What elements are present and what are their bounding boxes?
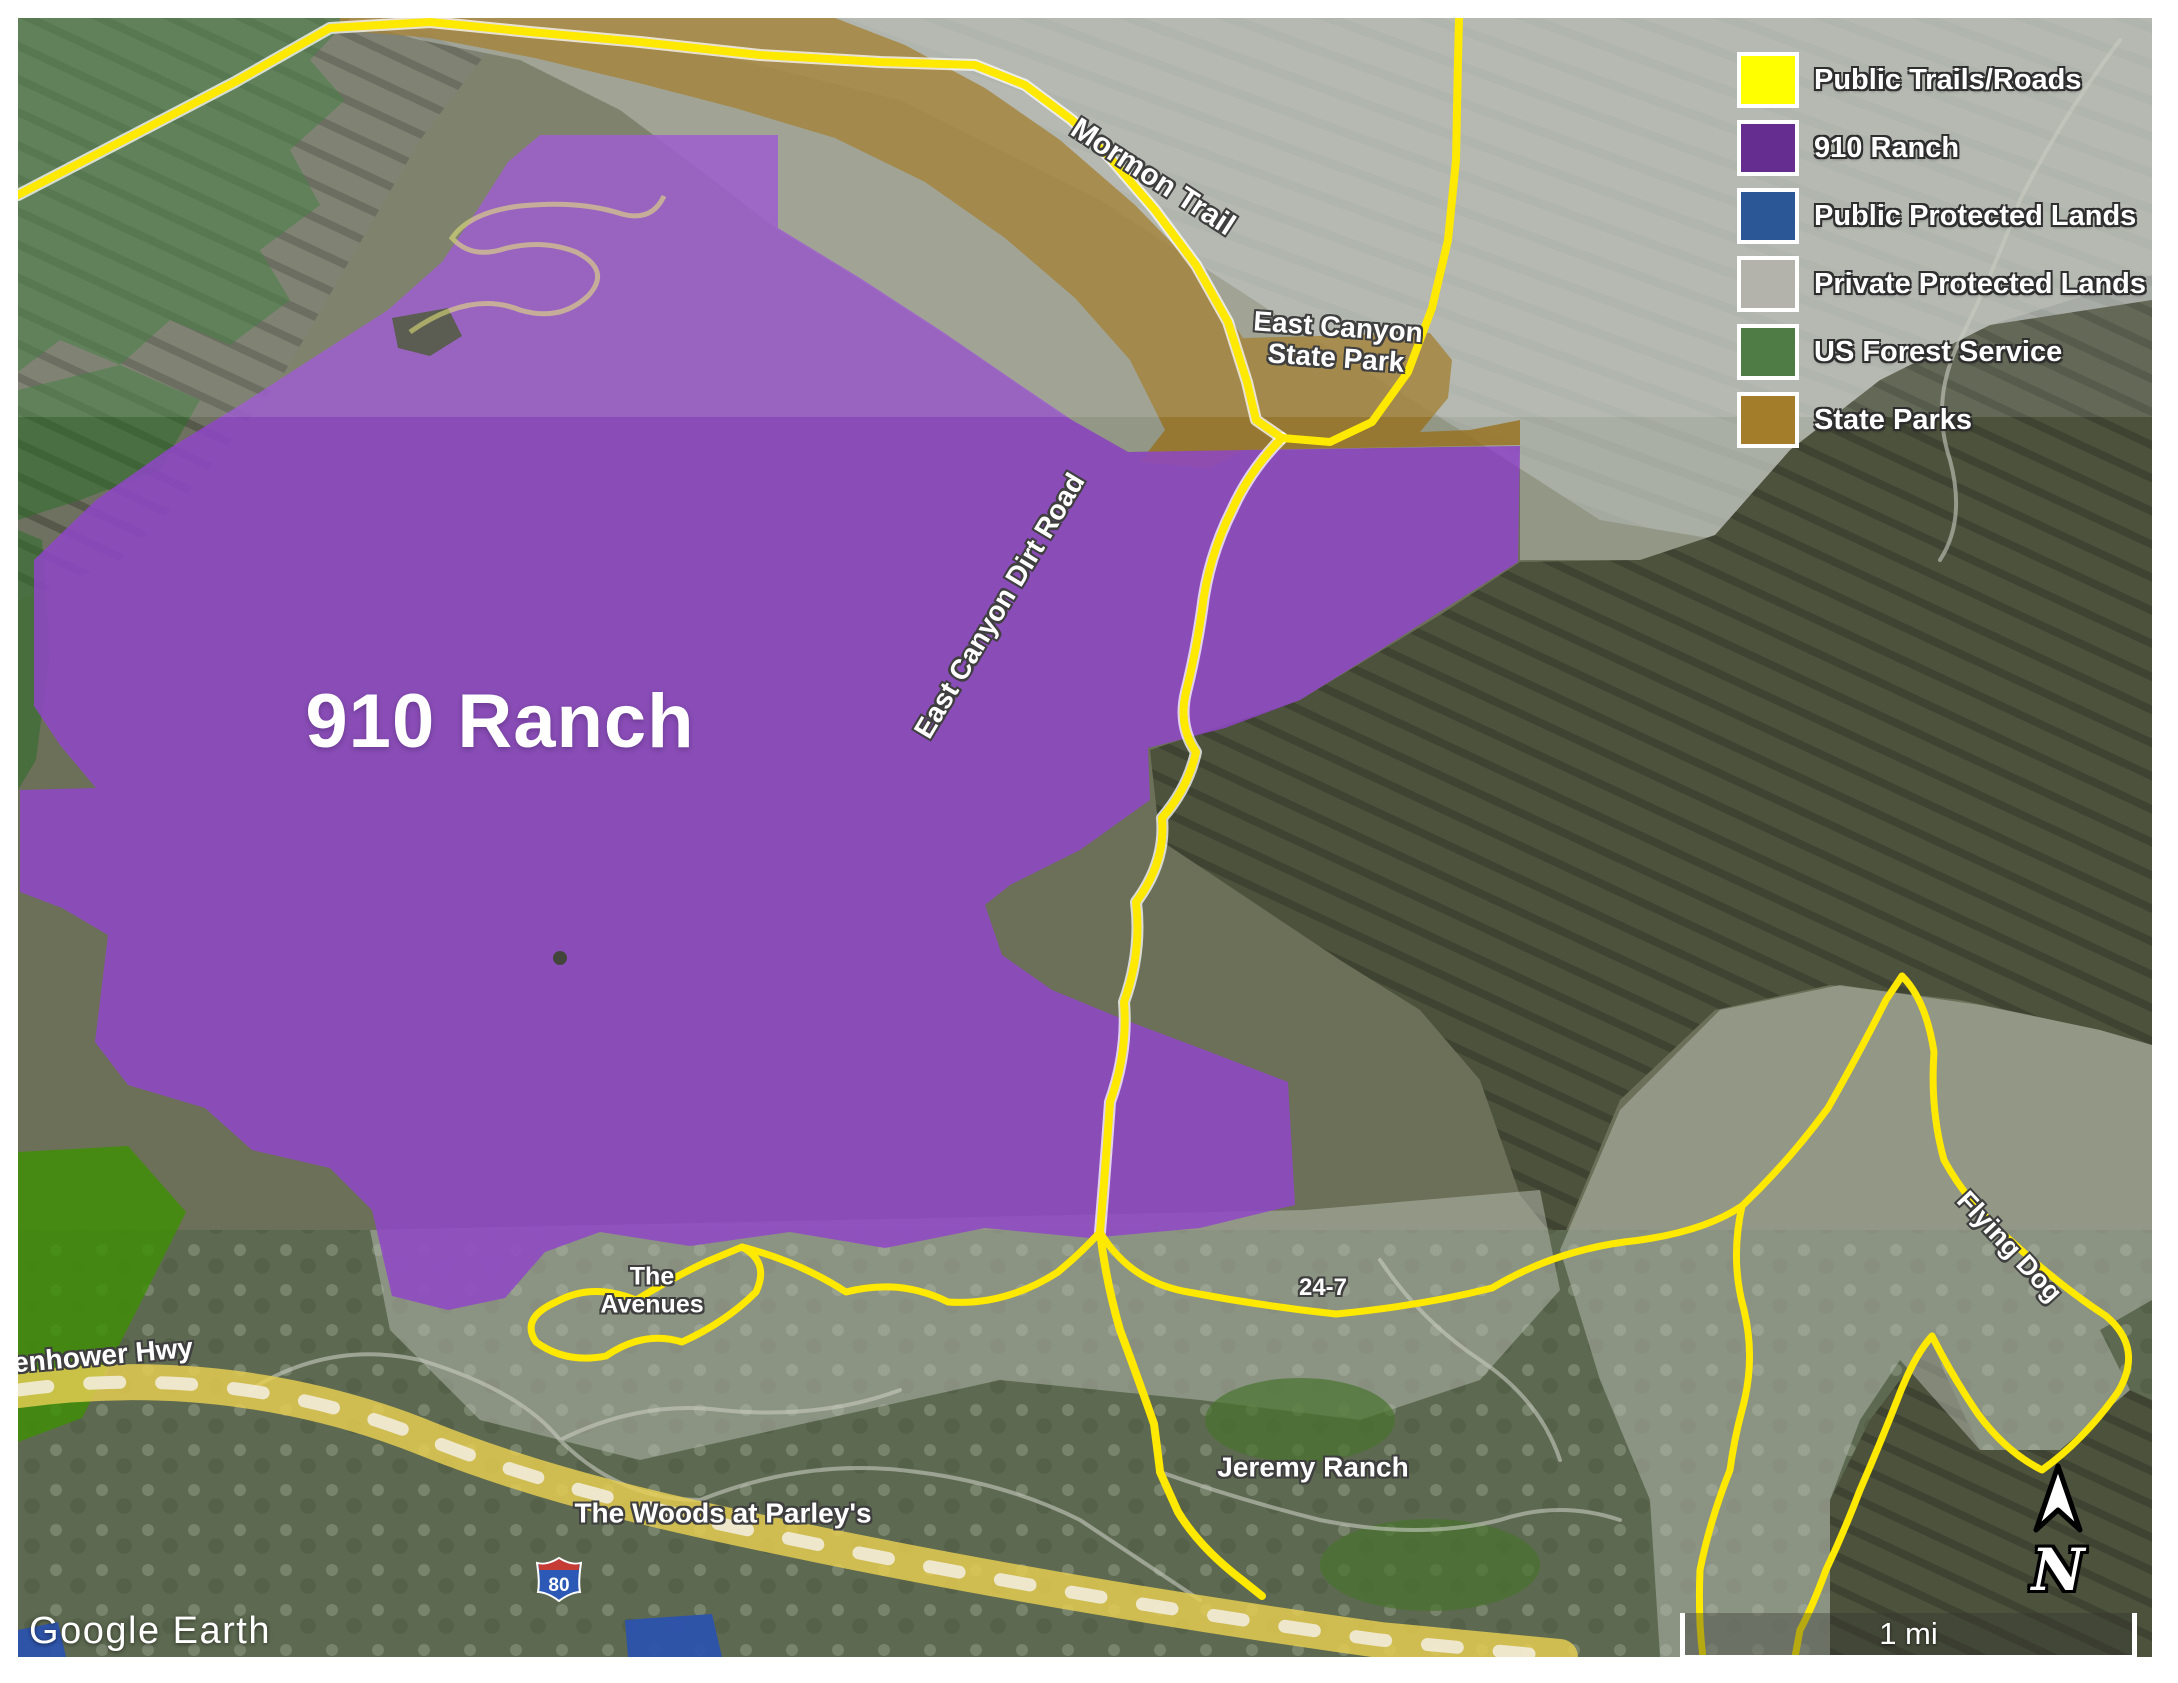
svg-text:80: 80: [548, 1575, 569, 1596]
legend-item-us-forest-service: US Forest Service: [1737, 324, 2146, 380]
scale-bar: 1 mi: [1680, 1613, 2137, 1660]
legend-label-910-ranch: 910 Ranch: [1814, 132, 1959, 165]
map-legend: Public Trails/Roads910 RanchPublic Prote…: [1737, 52, 2146, 460]
legend-label-state-parks: State Parks: [1814, 404, 1972, 437]
interstate-shield-icon: 80: [536, 1554, 582, 1602]
legend-item-private-protected-lands: Private Protected Lands: [1737, 256, 2146, 312]
north-arrow-icon: [2016, 1462, 2100, 1540]
legend-label-public-trails-roads: Public Trails/Roads: [1814, 64, 2082, 97]
interstate-80-shield: 80: [536, 1554, 582, 1602]
terrain-island-2: [553, 951, 567, 965]
north-indicator: N: [2016, 1462, 2100, 1602]
overlay-public-protected-1: [625, 1614, 722, 1657]
legend-swatch-us-forest-service: [1737, 324, 1799, 380]
legend-item-public-trails-roads: Public Trails/Roads: [1737, 52, 2146, 108]
legend-label-public-protected-lands: Public Protected Lands: [1814, 200, 2136, 233]
legend-swatch-910-ranch: [1737, 120, 1799, 176]
legend-swatch-public-trails-roads: [1737, 52, 1799, 108]
legend-label-us-forest-service: US Forest Service: [1814, 336, 2062, 369]
north-letter: N: [2016, 1541, 2100, 1599]
legend-item-state-parks: State Parks: [1737, 392, 2146, 448]
legend-swatch-state-parks: [1737, 392, 1799, 448]
golf-fairway-1: [1205, 1378, 1395, 1462]
legend-item-910-ranch: 910 Ranch: [1737, 120, 2146, 176]
legend-label-private-protected-lands: Private Protected Lands: [1814, 268, 2146, 301]
scale-bar-label: 1 mi: [1879, 1616, 1938, 1652]
legend-item-public-protected-lands: Public Protected Lands: [1737, 188, 2146, 244]
page-frame: 910 RanchMormon TrailEast Canyon State P…: [0, 0, 2178, 1683]
legend-swatch-private-protected-lands: [1737, 256, 1799, 312]
legend-swatch-public-protected-lands: [1737, 188, 1799, 244]
golf-fairway-2: [1320, 1519, 1540, 1611]
